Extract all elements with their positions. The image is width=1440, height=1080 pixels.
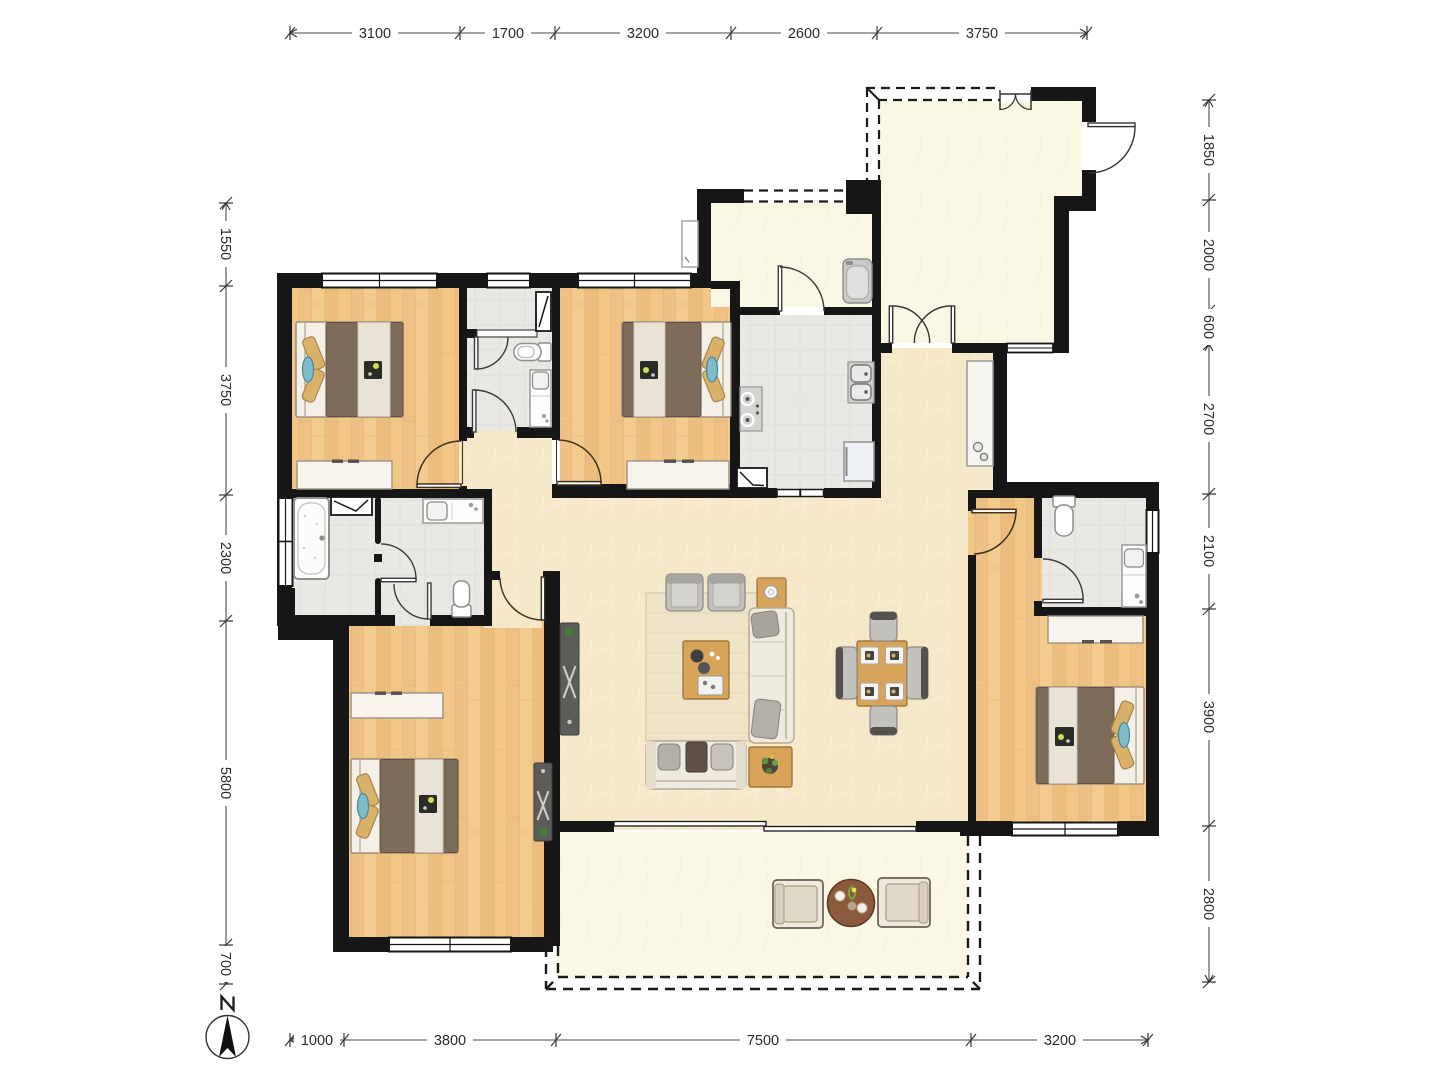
svg-text:3750: 3750: [966, 26, 998, 42]
svg-text:2600: 2600: [788, 26, 820, 42]
svg-text:2300: 2300: [217, 542, 233, 574]
svg-text:1850: 1850: [1200, 134, 1216, 166]
svg-text:3200: 3200: [627, 26, 659, 42]
svg-text:2000: 2000: [1200, 239, 1216, 271]
svg-text:1700: 1700: [492, 26, 524, 42]
svg-text:7500: 7500: [747, 1033, 779, 1049]
svg-text:3750: 3750: [217, 374, 233, 406]
svg-text:600: 600: [1200, 315, 1216, 339]
svg-text:1550: 1550: [217, 228, 233, 260]
svg-text:5800: 5800: [217, 767, 233, 799]
svg-text:3900: 3900: [1200, 701, 1216, 733]
svg-text:2700: 2700: [1200, 403, 1216, 435]
svg-text:1000: 1000: [301, 1033, 333, 1049]
svg-text:3200: 3200: [1044, 1033, 1076, 1049]
svg-text:2800: 2800: [1200, 888, 1216, 920]
svg-text:3100: 3100: [359, 26, 391, 42]
svg-text:2100: 2100: [1200, 535, 1216, 567]
svg-text:3800: 3800: [434, 1033, 466, 1049]
svg-text:700: 700: [217, 952, 233, 976]
